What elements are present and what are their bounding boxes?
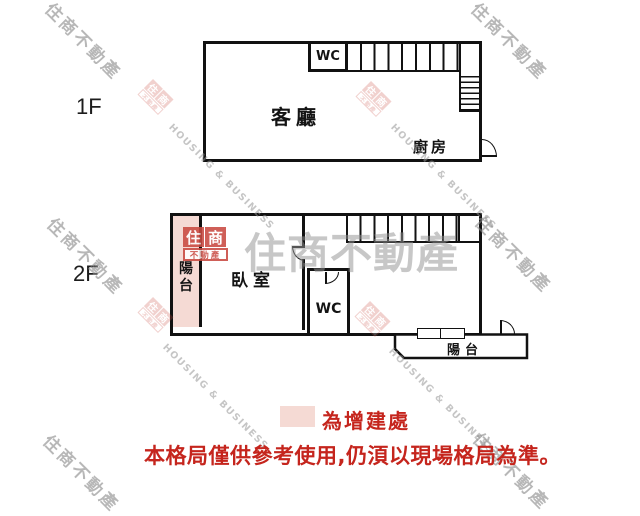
watermark-logo: 住商 不動產 bbox=[137, 297, 173, 333]
floorplan-page: { "floors": { "f1": { "label": "1F", "li… bbox=[0, 0, 640, 480]
disclaimer-text: 本格局僅供參考使用,仍湏以現場格局為準。 bbox=[144, 440, 561, 470]
room-label-balcony-right: 陽台 bbox=[447, 339, 483, 358]
legend-addition-swatch bbox=[280, 406, 315, 427]
stairs-1f-corner bbox=[459, 72, 480, 105]
watermark-logo: 住商 不動產 bbox=[137, 79, 173, 115]
logo-subtext: 不動產 bbox=[183, 248, 228, 261]
center-brand-logo: 住商 不動產 bbox=[183, 227, 228, 261]
watermark-brand-text: 住商不動產 bbox=[470, 209, 558, 297]
floor-label-1f: 1F bbox=[76, 94, 102, 120]
room-label-kitchen: 廚房 bbox=[413, 136, 449, 157]
watermark-brand-text: 住商不動產 bbox=[40, 0, 128, 84]
window-symbol bbox=[440, 328, 465, 339]
window-symbol bbox=[417, 328, 442, 339]
logo-char: 商 bbox=[205, 227, 226, 247]
door-swing-1f-kitchen bbox=[482, 139, 497, 157]
stairs-1f-corner-bottom bbox=[459, 109, 480, 112]
logo-char: 住 bbox=[183, 227, 204, 247]
stairs-1f-corner-wall bbox=[459, 72, 461, 111]
floor-label-2f: 2F bbox=[73, 261, 99, 287]
watermark-brand-text: 住商不動產 bbox=[38, 428, 126, 516]
stairs-1f-top bbox=[348, 44, 461, 72]
room-1f-wc: WC bbox=[308, 41, 348, 72]
door-swing-balcony bbox=[500, 320, 515, 334]
center-watermark-text: 住商不動產 bbox=[244, 220, 459, 281]
room-label-living: 客廳 bbox=[271, 101, 321, 130]
room-label-wc-1f: WC bbox=[316, 49, 340, 64]
room-label-balcony-left: 陽台 bbox=[179, 261, 194, 295]
legend-addition-label: 為增建處 bbox=[322, 405, 410, 434]
watermark-brand-en: HOUSING & BUSINESS bbox=[160, 342, 270, 452]
room-label-wc-2f: WC bbox=[316, 301, 342, 317]
